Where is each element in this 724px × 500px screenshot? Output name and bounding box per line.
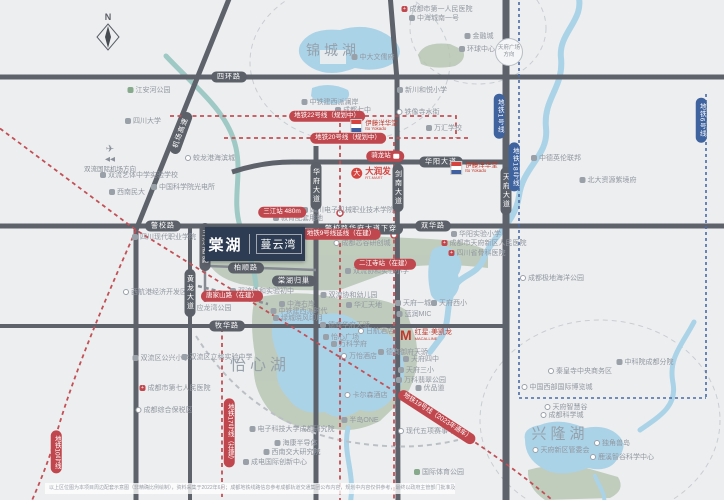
poi-label: 四川大学 bbox=[133, 116, 161, 126]
yokado-flag-icon bbox=[450, 161, 462, 175]
poi-label: 西南交大研究院 bbox=[272, 447, 321, 457]
compass: N bbox=[95, 12, 121, 57]
landmark-icon bbox=[594, 440, 600, 446]
map-poi: 独角兽岛 bbox=[594, 438, 630, 448]
building-icon bbox=[531, 155, 537, 161]
building-icon bbox=[465, 33, 471, 39]
poi-label: 中海城南一号 bbox=[417, 13, 459, 23]
metro-line-10 bbox=[30, 230, 136, 500]
building-icon bbox=[459, 46, 465, 52]
landmark-icon bbox=[548, 368, 554, 374]
metro-badge: 地铁17号线（在建） bbox=[224, 398, 235, 467]
road-name-badge: 柏顺路 bbox=[228, 263, 264, 274]
rtmart-icon: 大 bbox=[351, 168, 362, 179]
metro-badge-label: 三江站 480m bbox=[263, 209, 301, 216]
rt-mart-logo: 大大润发RT-MART bbox=[351, 167, 391, 180]
map-poi: 天府西小 bbox=[431, 298, 467, 308]
compass-icon bbox=[95, 22, 121, 52]
landmark-icon bbox=[522, 384, 528, 390]
rtmart-name-en: RT-MART bbox=[365, 175, 391, 179]
poi-label: 成都科学城 bbox=[549, 410, 584, 420]
poi-label: 优品道 bbox=[424, 383, 445, 393]
poi-label: 中大文儒府 bbox=[360, 52, 395, 62]
metro-lines-blue bbox=[519, 0, 706, 398]
metro-badge-label: 地铁17号线（在建） bbox=[226, 403, 233, 462]
landmark-icon bbox=[123, 289, 129, 295]
map-poi: 新川和悦小学 bbox=[397, 85, 447, 95]
building-icon bbox=[323, 334, 329, 340]
school-icon bbox=[109, 189, 115, 195]
poi-label: 双流区立格实验中学 bbox=[190, 352, 253, 362]
macalline-logo: M红星·美凯龙MACALLINE bbox=[400, 328, 452, 342]
school-icon bbox=[321, 292, 327, 298]
direction-airport: ✈◀◀ 双流国际机场方向 bbox=[84, 145, 136, 173]
metro-badge: 唐家山路（在建） bbox=[201, 291, 263, 302]
rtmart-text: 大润发RT-MART bbox=[365, 167, 391, 180]
landmark-icon bbox=[136, 407, 142, 413]
yokado-text: 伊藤洋华堂Ito Yokado bbox=[365, 120, 398, 132]
poi-label: 蓝润MIC bbox=[405, 309, 432, 319]
building-icon bbox=[395, 300, 401, 306]
poi-label: 绿城晓风印月 bbox=[281, 313, 323, 323]
building-icon bbox=[243, 459, 249, 465]
landmark-icon bbox=[334, 240, 340, 246]
poi-label: 半岛ONE bbox=[349, 415, 378, 425]
poi-label: 江安河公园 bbox=[136, 85, 171, 95]
landmark-icon bbox=[520, 275, 526, 281]
map-poi: 双流协和幼儿园 bbox=[321, 290, 378, 300]
poi-label: 成都市天府新区人民医院 bbox=[450, 238, 527, 248]
school-icon bbox=[398, 367, 404, 373]
poi-label: 中德英伦联邦 bbox=[539, 153, 581, 163]
metro-badge-label: 地铁20号线（规划中） bbox=[315, 135, 381, 142]
school-icon bbox=[431, 300, 437, 306]
poi-label: 双流协和幼儿园 bbox=[329, 290, 378, 300]
lake-name-label: 兴隆湖 bbox=[531, 423, 588, 444]
poi-label: 四川现代职业学院 bbox=[140, 232, 196, 242]
metro-badge-label: 地铁9号线延线（在建） bbox=[307, 231, 376, 238]
building-icon bbox=[580, 177, 586, 183]
map-poi: +成都市天府新区人民医院 bbox=[442, 238, 527, 248]
poi-label: 铁像寺水街 bbox=[405, 107, 440, 117]
logo-divider bbox=[249, 234, 250, 254]
school-icon bbox=[132, 234, 138, 240]
poi-label: 成都市第七人民医院 bbox=[148, 383, 211, 393]
map-poi: 优品道 bbox=[416, 383, 445, 393]
metro-badge: 地铁10号线 bbox=[51, 430, 62, 473]
project-subname: 蔓云湾 bbox=[256, 234, 302, 254]
metro-badge: 三江站 480m bbox=[258, 207, 306, 218]
poi-label: 成都综合保税区 bbox=[144, 405, 193, 415]
compass-north-label: N bbox=[95, 12, 121, 22]
map-poi: 成都科学城 bbox=[541, 410, 584, 420]
poi-label: 华汇天地 bbox=[354, 300, 382, 310]
poi-label: 天府新区管委会 bbox=[541, 445, 590, 455]
landmark-icon bbox=[533, 447, 539, 453]
school-icon bbox=[397, 87, 403, 93]
map-poi: 西南民大 bbox=[109, 187, 145, 197]
landmark-icon bbox=[398, 428, 404, 434]
landmark-icon bbox=[345, 392, 351, 398]
map-poi: 四川大学 bbox=[125, 116, 161, 126]
map-poi: 蓝润MIC bbox=[397, 309, 432, 319]
poi-label: 蛟龙港海滨城 bbox=[193, 153, 235, 163]
metro-badge-blue: 地铁6号线 bbox=[696, 98, 707, 143]
school-icon bbox=[426, 125, 432, 131]
school-icon bbox=[250, 426, 256, 432]
yokado-text: 伊藤洋华堂Ito Yokado bbox=[465, 162, 498, 174]
metro-badge-label: 地铁10号线 bbox=[53, 435, 60, 468]
direction-text: 双流国际机场方向 bbox=[84, 163, 136, 173]
poi-label: 天府三小 bbox=[406, 365, 434, 375]
map-poi: 中国西部国际博览城 bbox=[522, 382, 593, 392]
poi-label: 环球中心 bbox=[467, 44, 495, 54]
ito-yokado-logo: 伊藤洋华堂Ito Yokado bbox=[350, 119, 398, 133]
map-poi: 蛟龙港海滨城 bbox=[185, 153, 235, 163]
building-icon bbox=[352, 54, 358, 60]
road-name-badge: 警校路 bbox=[145, 221, 181, 232]
hospital-icon: + bbox=[449, 250, 455, 256]
poi-label: 四川省骨科医院 bbox=[457, 248, 506, 258]
map-poi: 中国科学院光电所 bbox=[151, 182, 215, 192]
school-icon bbox=[182, 354, 188, 360]
map-poi: 西南交大研究院 bbox=[264, 447, 321, 457]
map-poi: 成都芯谷研创城 bbox=[334, 238, 391, 248]
map-poi: 成都综合保税区 bbox=[136, 405, 193, 415]
poi-label: 天府西小 bbox=[439, 298, 467, 308]
building-icon bbox=[331, 341, 337, 347]
metro-badge-label: 唐家山路（在建） bbox=[206, 293, 258, 300]
poi-label: 西航港经济开发区 bbox=[131, 287, 187, 297]
building-icon bbox=[617, 359, 623, 365]
building-icon bbox=[378, 349, 384, 355]
map-poi: 万怡酒店 bbox=[341, 351, 377, 361]
poi-label: 万汇学校 bbox=[434, 123, 462, 133]
metro-badge: 地铁20号线（规划中） bbox=[310, 133, 386, 144]
road-name-badge: 棠湖归巢 bbox=[272, 276, 316, 287]
map-poi: 日航酒店 bbox=[358, 326, 394, 336]
bus-icon bbox=[393, 154, 399, 159]
building-icon bbox=[346, 302, 352, 308]
map-poi: 中海城南一号 bbox=[409, 13, 459, 23]
poi-label: 中国西部国际博览城 bbox=[530, 382, 593, 392]
yokado-name-en: Ito Yokado bbox=[365, 127, 398, 132]
landmark-icon bbox=[341, 353, 347, 359]
map-poi: 中大文儒府 bbox=[352, 52, 395, 62]
project-name: 棠湖 bbox=[208, 234, 242, 255]
metro-badge-blue: 地铁1号线 bbox=[494, 94, 505, 139]
poi-label: 中国科学院光电所 bbox=[159, 182, 215, 192]
poi-label: 新川和悦小学 bbox=[405, 85, 447, 95]
road-name-badge: 四环路 bbox=[211, 72, 247, 83]
map-poi: 四川现代职业学院 bbox=[132, 232, 196, 242]
map-poi: 卡尔森酒店 bbox=[345, 390, 388, 400]
poi-label: 成都极地海洋公园 bbox=[528, 273, 584, 283]
school-icon bbox=[345, 268, 351, 274]
building-icon bbox=[273, 315, 279, 321]
road-name-badge: 华府大道 bbox=[311, 162, 322, 210]
building-icon bbox=[320, 322, 326, 328]
road-name-badge: 剑南大道 bbox=[393, 164, 404, 212]
metro-line-1 bbox=[519, 0, 706, 398]
road-name-badge: 双华路 bbox=[415, 221, 451, 232]
school-icon bbox=[125, 118, 131, 124]
map-poi: 绿城晓风印月 bbox=[273, 313, 323, 323]
poi-label: 独角兽岛 bbox=[602, 438, 630, 448]
map-poi: 电子科技大学成都研究院 bbox=[250, 424, 335, 434]
map-base-layer bbox=[0, 0, 724, 500]
poi-label: 鹿溪智谷科学中心 bbox=[598, 452, 654, 462]
map-poi: 鹿溪智谷科学中心 bbox=[590, 452, 654, 462]
building-icon bbox=[151, 184, 157, 190]
metro-badge: 二江寺站（在建） bbox=[354, 259, 416, 270]
map-poi: 秦皇寺中央商务区 bbox=[548, 366, 612, 376]
landmark-icon bbox=[590, 454, 596, 460]
ito-yokado-logo: 伊藤洋华堂Ito Yokado bbox=[450, 161, 498, 175]
building-icon bbox=[396, 377, 402, 383]
poi-label: 中科院成都分院 bbox=[625, 357, 674, 367]
poi-label: 北大资源紫境府 bbox=[588, 175, 637, 185]
landmark-icon bbox=[541, 412, 547, 418]
map-poi: 环球中心 bbox=[459, 44, 495, 54]
map-poi: 万科学府 bbox=[331, 339, 367, 349]
poi-label: 电子科技大学成都研究院 bbox=[258, 424, 335, 434]
road-name-badge: 黄龙大道 bbox=[185, 269, 196, 317]
hospital-icon: + bbox=[140, 385, 146, 391]
poi-label: 金融城 bbox=[473, 31, 494, 41]
map-poi: 半岛ONE bbox=[341, 415, 378, 425]
building-icon bbox=[397, 311, 403, 317]
map-poi: 铁像寺水街 bbox=[397, 107, 440, 117]
map-poi: 西航港经济开发区 bbox=[123, 287, 187, 297]
metro-badge-label: 二江寺站（在建） bbox=[359, 261, 411, 268]
poi-label: 秦皇寺中央商务区 bbox=[556, 366, 612, 376]
poi-label: 天府四中 bbox=[411, 354, 439, 364]
poi-label: 万怡酒店 bbox=[349, 351, 377, 361]
poi-label: 天府一城 bbox=[403, 298, 431, 308]
poi-label: 卡尔森酒店 bbox=[353, 390, 388, 400]
poi-label: 日航酒店 bbox=[366, 326, 394, 336]
map-poi: 成电国际创新中心 bbox=[243, 457, 307, 467]
macalline-m-icon: M bbox=[400, 328, 412, 342]
direction-label: 天府广场方向 bbox=[495, 38, 523, 66]
yokado-name-en: Ito Yokado bbox=[465, 169, 498, 174]
landmark-icon bbox=[185, 155, 191, 161]
building-icon bbox=[416, 385, 422, 391]
map-poi: +四川省骨科医院 bbox=[449, 248, 506, 258]
location-map: N 棠湖 蔓云湾 以上区位图为本项目周边配套示意图（非精确比例绘制），资料采集于… bbox=[0, 0, 724, 500]
school-icon bbox=[133, 355, 139, 361]
hospital-icon: + bbox=[442, 240, 448, 246]
school-icon bbox=[451, 231, 457, 237]
building-icon bbox=[341, 417, 347, 423]
park-icon bbox=[414, 469, 420, 475]
map-poi: 天府四中 bbox=[403, 354, 439, 364]
poi-label: 应龙湾公园 bbox=[197, 303, 232, 313]
poi-label: 西南民大 bbox=[117, 187, 145, 197]
metro-badge: 骑龙站 bbox=[366, 151, 404, 162]
map-poi: +成都市第七人民医院 bbox=[140, 383, 211, 393]
yokado-flag-icon bbox=[350, 119, 362, 133]
map-poi: 华汇天地 bbox=[346, 300, 382, 310]
poi-label: 万科学府 bbox=[339, 339, 367, 349]
map-poi: 北大资源紫境府 bbox=[580, 175, 637, 185]
macalline-text: 红星·美凯龙MACALLINE bbox=[415, 329, 452, 341]
map-poi: 江安河公园 bbox=[128, 85, 171, 95]
poi-label: 国际体育公园 bbox=[422, 467, 464, 477]
school-icon bbox=[264, 449, 270, 455]
metro-badge-label: 骑龙站 bbox=[371, 153, 391, 160]
map-poi: 万汇学校 bbox=[426, 123, 462, 133]
map-poi: 双流区立格实验中学 bbox=[182, 352, 253, 362]
school-icon bbox=[403, 356, 409, 362]
map-poi: 中德英伦联邦 bbox=[531, 153, 581, 163]
map-poi: 国际体育公园 bbox=[414, 467, 464, 477]
map-poi: 天府新区管委会 bbox=[533, 445, 590, 455]
metro-badge: 地铁9号线延线（在建） bbox=[302, 229, 381, 240]
airplane-icon: ✈ bbox=[106, 145, 114, 155]
road-name-badge: 牧华路 bbox=[209, 321, 245, 332]
macalline-name-en: MACALLINE bbox=[415, 337, 452, 341]
project-logo: 棠湖 蔓云湾 bbox=[205, 227, 305, 261]
map-disclaimer: 以上区位图为本项目周边配套示意图（非精确比例绘制），资料采集于2022年6月；成… bbox=[45, 483, 455, 494]
map-poi: 成都极地海洋公园 bbox=[520, 273, 584, 283]
arrows-icon: ◀◀ bbox=[105, 155, 115, 163]
map-poi: 中科院成都分院 bbox=[617, 357, 674, 367]
building-icon bbox=[275, 440, 281, 446]
map-poi: 天府一城 bbox=[395, 298, 431, 308]
map-poi: 金融城 bbox=[465, 31, 494, 41]
building-icon bbox=[409, 15, 415, 21]
map-poi: 天府三小 bbox=[398, 365, 434, 375]
landmark-icon bbox=[397, 109, 403, 115]
building-icon bbox=[302, 99, 308, 105]
hospital-icon: + bbox=[402, 6, 408, 12]
poi-label: 成都芯谷研创城 bbox=[342, 238, 391, 248]
poi-label: 成电国际创新中心 bbox=[251, 457, 307, 467]
metro-badge-blue: 地铁18号线 bbox=[509, 142, 520, 191]
park-icon bbox=[128, 87, 134, 93]
